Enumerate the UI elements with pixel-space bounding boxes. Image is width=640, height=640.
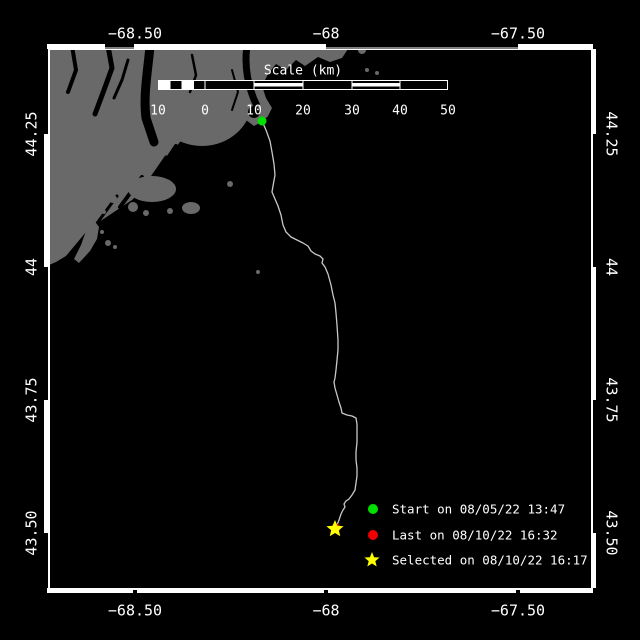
round-island <box>152 54 252 146</box>
lon-label-top-1: −68.50 <box>108 27 162 42</box>
scale-tick-5: 30 <box>344 105 360 118</box>
scale-tick-6: 40 <box>392 105 408 118</box>
scale-tick-7: 50 <box>440 105 456 118</box>
lat-label-right-1: 44.25 <box>604 111 619 156</box>
legend-label-last: Last on 08/10/22 16:32 <box>392 528 558 543</box>
lat-label-right-2: 44 <box>604 258 619 276</box>
scale-tick-4: 20 <box>295 105 311 118</box>
lon-label-bottom-2: −68 <box>312 604 339 619</box>
scale-bar <box>158 80 448 90</box>
lon-label-top-3: −67.50 <box>491 27 545 42</box>
lat-label-right-4: 43.50 <box>604 510 619 555</box>
legend-last-dot <box>368 530 378 540</box>
lon-label-top-2: −68 <box>312 27 339 42</box>
lat-label-left-1: 44.25 <box>25 111 40 156</box>
legend-start-dot <box>368 504 378 514</box>
legend-label-start: Start on 08/05/22 13:47 <box>392 502 565 517</box>
scale-tick-2: 0 <box>201 105 209 118</box>
scale-tick-1: 10 <box>150 105 166 118</box>
legend-label-selected: Selected on 08/10/22 16:17 <box>392 553 588 568</box>
lat-label-left-4: 43.50 <box>25 510 40 555</box>
lat-label-left-2: 44 <box>25 258 40 276</box>
scale-tick-3: 10 <box>246 105 262 118</box>
scale-bar-title: Scale (km) <box>264 65 342 78</box>
drifter-track-map: −68.50 −68 −67.50 −68.50 −68 −67.50 44.2… <box>0 0 640 640</box>
lon-label-bottom-1: −68.50 <box>108 604 162 619</box>
lat-label-left-3: 43.75 <box>25 377 40 422</box>
lat-label-right-3: 43.75 <box>604 377 619 422</box>
map-canvas[interactable] <box>0 0 640 640</box>
lon-label-bottom-3: −67.50 <box>491 604 545 619</box>
